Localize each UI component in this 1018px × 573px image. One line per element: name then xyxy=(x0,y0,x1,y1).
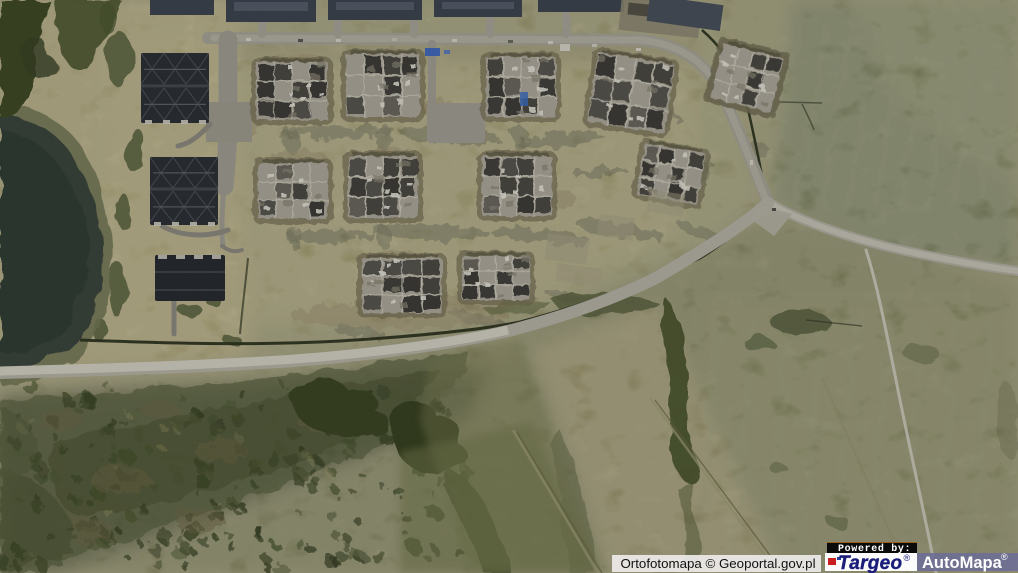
svg-text:Ortofotomapa © Geoportal.gov.p: Ortofotomapa © Geoportal.gov.pl xyxy=(620,556,815,571)
svg-text:Targeo: Targeo xyxy=(838,553,902,573)
svg-text:®: ® xyxy=(904,553,911,563)
svg-text:®: ® xyxy=(1001,552,1008,562)
svg-text:AutoMapa: AutoMapa xyxy=(922,554,1003,572)
